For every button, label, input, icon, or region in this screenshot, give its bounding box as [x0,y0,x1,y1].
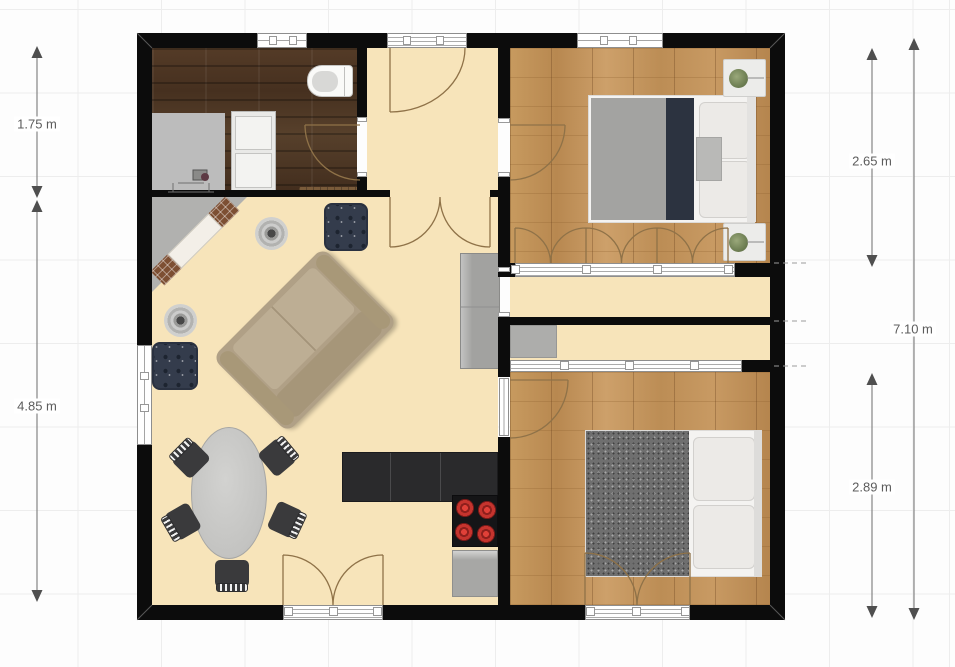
cabinet-door-bottom [235,153,272,188]
wall-hall-bedroom1-bottom [498,177,510,197]
track-marker [625,361,634,370]
wall-east-c [498,437,510,605]
plant-icon [729,233,748,252]
opening-jamb [498,312,510,317]
storage-cabinet[interactable] [231,111,276,192]
ottoman-2[interactable] [152,342,198,390]
window-living-left[interactable] [137,345,152,445]
dishwasher[interactable] [452,550,498,597]
track-marker [653,265,662,274]
track-marker [373,607,382,616]
wall-exterior-right [770,33,785,620]
cabinet-door-top [235,116,272,150]
bed2-blanket [586,431,689,576]
ottoman-1[interactable] [324,203,368,251]
wall-east-b [498,317,510,377]
dimension-label-right-1: 2.65 m [849,154,895,169]
burner-icon [455,523,473,541]
nightstand-2[interactable] [723,223,766,261]
track-marker [724,265,733,274]
track-marker [284,607,293,616]
entry-door-threshold[interactable] [387,33,467,48]
toilet-bowl [312,71,338,92]
bed1-base[interactable] [588,95,755,223]
bed2-headboard [754,431,762,576]
door-jamb [357,117,367,122]
bed1-mattress [591,98,666,220]
door-jamb [498,118,510,123]
burner-icon [477,525,495,543]
wall-bath-bottom-b [490,190,498,197]
round-side-table-2[interactable] [164,304,197,337]
plant-icon [729,69,748,88]
window-mullion [436,36,444,45]
track-marker [582,265,591,274]
dimension-label-left-2: 4.85 m [14,399,60,414]
window-mullion [289,36,297,45]
room-hall-floor [367,48,498,197]
sideboard[interactable] [460,253,500,369]
toilet[interactable] [307,65,353,97]
wall-east-a [498,197,510,272]
bed2-pillow-top [693,437,755,501]
window-mullion [600,36,608,45]
dimension-label-right-2: 2.89 m [849,480,895,495]
floorplan-canvas: 1.75 m 4.85 m 2.65 m 2.89 m 7.10 m [0,0,955,667]
burner-icon [456,499,474,517]
track-marker [511,265,520,274]
sliding-wall-stub-right [742,360,770,372]
track-marker [560,361,569,370]
opening-jamb [498,267,510,272]
window-bathroom-top[interactable] [257,33,307,48]
door-jamb [357,172,367,177]
bed2-base[interactable] [585,430,762,577]
window-mullion [629,36,637,45]
dimension-label-right-total: 7.10 m [890,322,936,337]
window-mullion [403,36,411,45]
bed1-runner [666,98,694,220]
wall-hall-bedroom1-top [498,48,510,123]
door-jamb [498,172,510,177]
dimension-label-left-1: 1.75 m [14,117,60,132]
window-mullion [140,404,149,412]
wall-bath-bottom-a [152,190,390,197]
dining-chair-5[interactable] [215,560,249,587]
bedroom2-door-frame[interactable] [499,378,509,436]
track-marker [681,607,690,616]
window-bedroom1-top[interactable] [577,33,663,48]
burner-icon [478,501,496,519]
closet-wall-stub-right [735,263,770,277]
cooktop[interactable] [452,495,498,547]
track-marker [690,361,699,370]
wall-bath-right-top [357,48,367,122]
bed1-cushion [696,137,722,181]
round-side-table-1[interactable] [255,217,288,250]
wall-corridor-mid [510,317,770,325]
appliance-niche[interactable] [510,325,557,358]
bed2-pillow-bottom [693,505,755,569]
window-mullion [269,36,277,45]
track-marker [632,607,641,616]
window-mullion [140,372,149,380]
corridor1-floor [510,277,770,317]
bed1-headboard [747,96,756,222]
wall-bath-right-bottom [357,176,367,197]
track-marker [586,607,595,616]
oval-dining-table[interactable] [191,427,267,559]
track-marker [329,607,338,616]
toilet-tank [344,67,345,96]
closet-door-track[interactable] [515,263,735,277]
nightstand-1[interactable] [723,59,766,97]
wall-exterior-left [137,33,152,620]
chair-trim [216,583,248,592]
bathroom-rug[interactable] [152,113,225,195]
